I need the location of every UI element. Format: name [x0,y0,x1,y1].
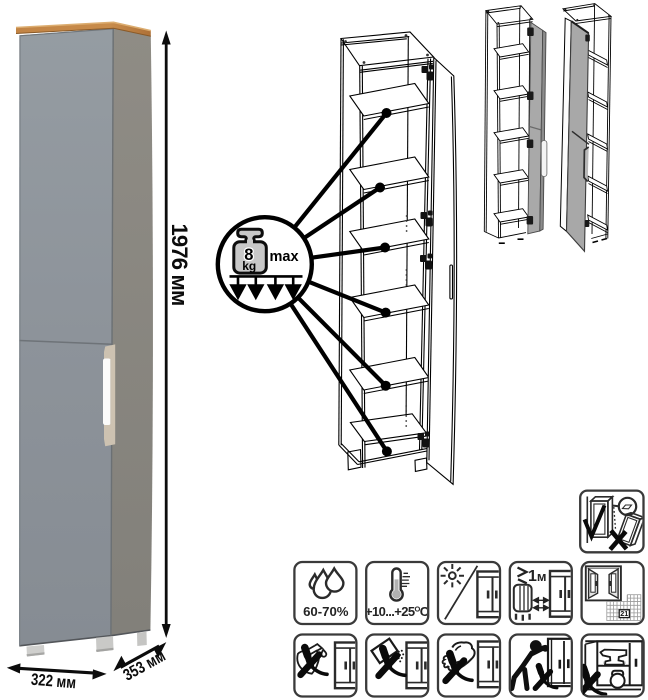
svg-text:max: max [269,249,298,265]
svg-text:kg: kg [242,259,256,273]
svg-text:1976 мм: 1976 мм [167,223,192,305]
svg-text:60-70%: 60-70% [303,604,349,619]
svg-text:1м: 1м [528,568,547,585]
svg-text:322 мм: 322 мм [30,670,77,692]
svg-text:21: 21 [620,609,628,618]
svg-text:+10...+25OC: +10...+25OC [365,604,430,619]
